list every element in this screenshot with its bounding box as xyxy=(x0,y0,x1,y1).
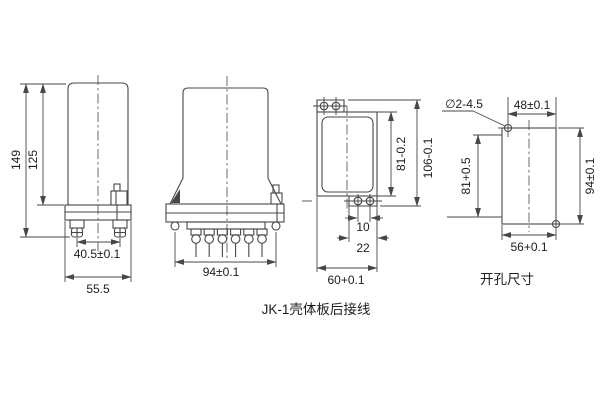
rear-plate-view: 81-0.2 106-0.1 10 22 60+0.1 xyxy=(302,97,435,287)
dim-label-rear-plate-width: 60+0.1 xyxy=(327,273,364,287)
front-view: 94±0.1 xyxy=(166,76,284,279)
dim-label-front-mounting-span: 94±0.1 xyxy=(203,265,240,279)
dim-label-rear-plate-height: 81-0.2 xyxy=(394,137,408,171)
drawing-canvas: 149 125 40.5±0.1 55.5 94±0. xyxy=(0,0,600,400)
dim-label-side-terminal-pitch: 40.5±0.1 xyxy=(74,247,121,261)
terminal-row xyxy=(191,229,267,257)
hole-callout-label: ∅2-4.5 xyxy=(445,97,483,111)
cutout-view-caption: 开孔尺寸 xyxy=(480,272,534,287)
cutout-view: ∅2-4.5 48±0.1 81+0.5 94±0.1 56+0.1 开孔尺寸 xyxy=(442,97,597,287)
dim-label-cutout-opening-width: 56+0.1 xyxy=(510,240,547,254)
side-view: 149 125 40.5±0.1 55.5 xyxy=(9,75,131,296)
technical-drawing: 149 125 40.5±0.1 55.5 94±0. xyxy=(0,0,600,400)
dim-label-cutout-hole-span-v: 94±0.1 xyxy=(583,157,597,194)
dim-label-side-body-height: 125 xyxy=(26,150,40,170)
dim-label-rear-overall-height: 106-0.1 xyxy=(421,137,435,178)
dim-label-rear-tab-width: 22 xyxy=(356,241,370,255)
dim-label-cutout-hole-offset: 48±0.1 xyxy=(514,98,551,112)
dim-label-side-overall-width: 55.5 xyxy=(86,282,110,296)
dim-label-side-overall-height: 149 xyxy=(9,150,23,170)
drawing-caption: JK-1壳体板后接线 xyxy=(262,301,371,317)
dim-label-rear-hole-pitch: 10 xyxy=(356,220,370,234)
dim-label-cutout-opening-height: 81+0.5 xyxy=(459,157,473,194)
